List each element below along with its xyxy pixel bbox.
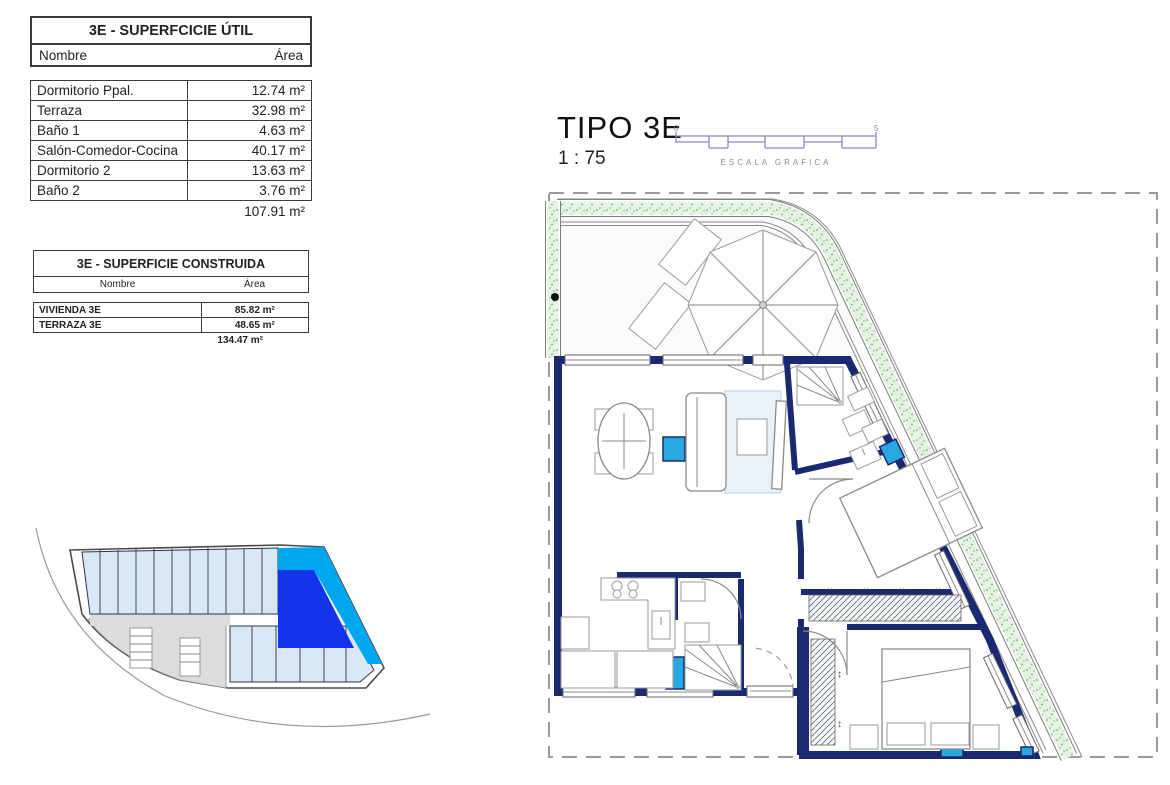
walkway [90, 614, 230, 626]
table-header: Nombre Área [33, 277, 309, 293]
cell-area: 48.65 m² [201, 318, 308, 333]
common-area [88, 618, 226, 688]
area-table-util: 3E - SUPERFCICIE ÚTIL Nombre Área Dormit… [30, 16, 312, 219]
col-header-nombre: Nombre [39, 48, 87, 63]
cell-area: 13.63 m² [188, 161, 312, 181]
table-row: Baño 23.76 m² [31, 181, 312, 201]
kitchen [601, 578, 675, 649]
table-header: Nombre Área [30, 45, 312, 67]
cell-nombre: Terraza [31, 101, 188, 121]
table-total: 134.47 m² [33, 333, 309, 346]
sofa [686, 393, 726, 491]
entry-door-swing [751, 648, 793, 690]
svg-text:↕: ↕ [837, 719, 842, 730]
svg-text:↕: ↕ [837, 669, 842, 680]
table-title: 3E - SUPERFCICIE ÚTIL [30, 16, 312, 45]
area-table-construida: 3E - SUPERFICIE CONSTRUIDA Nombre Área V… [33, 250, 309, 346]
scale-bar-graphic [676, 132, 876, 148]
cell-nombre: Dormitorio Ppal. [31, 81, 188, 101]
cell-nombre: Dormitorio 2 [31, 161, 188, 181]
bedroom1 [809, 387, 982, 578]
table-row: Dormitorio Ppal.12.74 m² [31, 81, 312, 101]
bathroom2-door-arc [701, 579, 741, 619]
toilet2 [681, 582, 705, 601]
col-header-nombre: Nombre [34, 279, 201, 290]
utility-marker-dot [551, 293, 559, 301]
col-header-area: Área [274, 48, 303, 63]
green-border-left-strip [551, 201, 559, 358]
svg-text:↔: ↔ [897, 583, 907, 594]
plan-scale: 1 : 75 [558, 148, 606, 170]
svg-text:↔: ↔ [861, 583, 871, 594]
entry-door [747, 648, 793, 697]
dining-set [595, 403, 653, 479]
col-header-area: Área [201, 279, 308, 290]
table-row: VIVIENDA 3E85.82 m² [34, 303, 309, 318]
cell-nombre: TERRAZA 3E [34, 318, 202, 333]
bedroom2-left-wall [797, 627, 809, 755]
table-row: Terraza32.98 m² [31, 101, 312, 121]
table-body: VIVIENDA 3E85.82 m²TERRAZA 3E48.65 m² [33, 302, 309, 333]
sink1 [849, 441, 880, 469]
cell-area: 3.76 m² [188, 181, 312, 201]
corner-cyan-sill [1021, 747, 1033, 756]
scale-start-label: 0 [674, 124, 679, 133]
sofa-area [686, 391, 786, 493]
graphic-scale-bar: 0 5 ESCALA GRAFICA [668, 120, 886, 172]
cell-area: 4.63 m² [188, 121, 312, 141]
coffee-table [737, 419, 767, 455]
units-top-row [82, 548, 278, 614]
cell-nombre: Baño 1 [31, 121, 188, 141]
road-edge-bottom [165, 696, 430, 726]
cell-area: 40.17 m² [188, 141, 312, 161]
plan-title: TIPO 3E [557, 110, 683, 146]
scale-end-label: 5 [874, 124, 879, 133]
floor-plan: ↔ ↔ ↔ ↔ ↕ ↕ [545, 187, 1170, 765]
cell-area: 85.82 m² [201, 303, 308, 318]
cell-nombre: VIVIENDA 3E [34, 303, 202, 318]
table-row: Salón-Comedor-Cocina40.17 m² [31, 141, 312, 161]
living-cyan-unit [663, 437, 685, 461]
wardrobe2 [811, 639, 835, 745]
cell-nombre: Salón-Comedor-Cocina [31, 141, 188, 161]
key-plan [30, 518, 435, 768]
sink2 [685, 623, 709, 642]
bedroom2: ↕ ↕ [803, 631, 999, 749]
bathroom2 [681, 579, 741, 690]
cell-nombre: Baño 2 [31, 181, 188, 201]
table-row: TERRAZA 3E48.65 m² [34, 318, 309, 333]
cell-area: 32.98 m² [188, 101, 312, 121]
table-row: Dormitorio 213.63 m² [31, 161, 312, 181]
corridor-wardrobe: ↔ ↔ ↔ ↔ [809, 583, 961, 621]
svg-text:↔: ↔ [825, 583, 835, 594]
table-total: 107.91 m² [30, 201, 312, 219]
table-body: Dormitorio Ppal.12.74 m²Terraza32.98 m²B… [30, 80, 312, 201]
table-title: 3E - SUPERFICIE CONSTRUIDA [33, 250, 309, 277]
svg-text:↔: ↔ [933, 583, 943, 594]
graphic-scale-label: ESCALA GRAFICA [721, 158, 832, 167]
cell-area: 12.74 m² [188, 81, 312, 101]
table-row: Baño 14.63 m² [31, 121, 312, 141]
